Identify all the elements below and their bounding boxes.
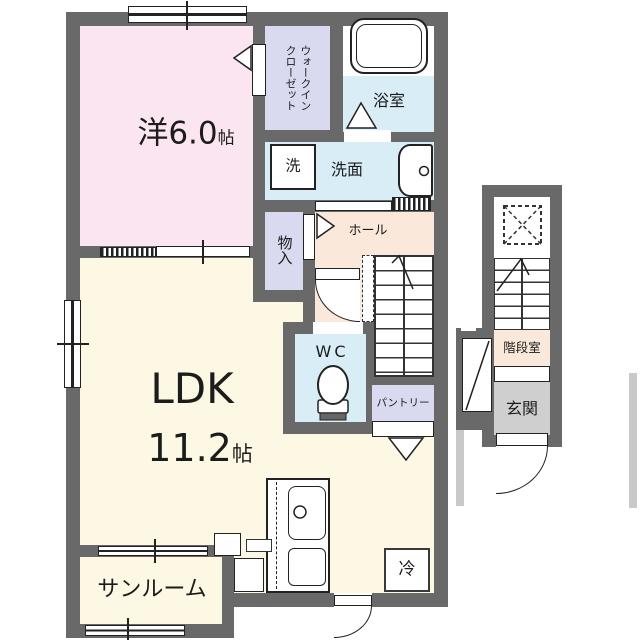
label-bathroom: 浴室 bbox=[373, 93, 405, 109]
gray-line-right bbox=[629, 373, 637, 508]
label-western-size: 洋6.0 bbox=[137, 116, 217, 152]
shoe-cabinet bbox=[462, 338, 492, 412]
door-wc-gap bbox=[313, 322, 363, 334]
pantry-opening bbox=[372, 421, 434, 437]
sliding-door-washroom-hatch bbox=[392, 197, 431, 211]
kitchen-dashed-line bbox=[276, 482, 277, 589]
washbasin-icon bbox=[398, 144, 433, 197]
window-western-top bbox=[128, 6, 247, 23]
entrance-door-arc bbox=[496, 446, 548, 494]
stairs-main-rail bbox=[362, 255, 374, 322]
label-washroom: 洗面 bbox=[331, 162, 363, 178]
label-stairwell: 階段室 bbox=[503, 342, 541, 355]
label-sunroom: サンルーム bbox=[97, 579, 206, 601]
label-wic-line1: ウォークイン bbox=[297, 45, 312, 111]
sliding-door-washroom-leaf bbox=[315, 201, 392, 211]
floor-plan: 洋6.0帖 ウォークイン クローゼット 浴室 洗 洗面 物入 ホール WC パン… bbox=[0, 0, 640, 640]
wall-under-stairs bbox=[362, 377, 434, 385]
door-storage-leaf bbox=[303, 214, 315, 260]
label-wic: ウォークイン クローゼット bbox=[282, 45, 312, 111]
wall-sunroom-right bbox=[222, 545, 234, 638]
door-ldk-south-arc bbox=[334, 606, 372, 638]
door-ldk-south-leaf bbox=[334, 595, 372, 606]
sunroom-door-piece bbox=[246, 539, 272, 552]
stairs-main-centerline bbox=[403, 257, 405, 375]
label-western-room: 洋6.0帖 bbox=[137, 119, 234, 150]
window-sunroom-bottom bbox=[85, 625, 185, 636]
label-wc: WC bbox=[316, 344, 349, 360]
label-wic-line2: クローゼット bbox=[282, 45, 297, 111]
wall-under-storage bbox=[253, 290, 315, 302]
window-sunroom-top bbox=[98, 546, 208, 556]
label-storage: 物入 bbox=[277, 235, 292, 265]
kitchen-sink-icon bbox=[288, 486, 326, 540]
door-wic-leaf bbox=[252, 44, 266, 96]
kitchen-cabinet bbox=[288, 548, 326, 586]
label-ldk: LDK bbox=[150, 368, 233, 410]
label-ldk-size: 11.2帖 bbox=[147, 429, 253, 467]
label-washer: 洗 bbox=[285, 159, 300, 174]
annex-inner-door bbox=[494, 366, 550, 382]
wall-right bbox=[434, 12, 448, 607]
door-bath-gap bbox=[344, 130, 391, 142]
wall-wic-bath bbox=[330, 12, 343, 132]
gray-line-left bbox=[456, 430, 464, 506]
sliding-door-western-hatch bbox=[100, 247, 156, 257]
label-ldk-size-unit: 帖 bbox=[232, 442, 253, 466]
label-ldk-size-num: 11.2 bbox=[147, 426, 232, 470]
sliding-door-western-leaf bbox=[156, 246, 250, 257]
bathtub-inner bbox=[356, 24, 422, 68]
entrance-door-leaf bbox=[496, 433, 548, 446]
label-hall: ホール bbox=[348, 225, 387, 238]
counter-box bbox=[234, 558, 264, 592]
label-entrance: 玄関 bbox=[506, 401, 538, 417]
sunroom-post bbox=[214, 533, 241, 556]
window-ldk-left bbox=[64, 300, 81, 388]
annex-notch bbox=[461, 323, 476, 331]
stairs-annex-centerline bbox=[521, 259, 523, 329]
label-fridge: 冷 bbox=[399, 562, 416, 579]
label-pantry: パントリー bbox=[376, 398, 429, 409]
label-western-unit: 帖 bbox=[218, 129, 235, 149]
door-hall-leaf bbox=[315, 268, 360, 280]
